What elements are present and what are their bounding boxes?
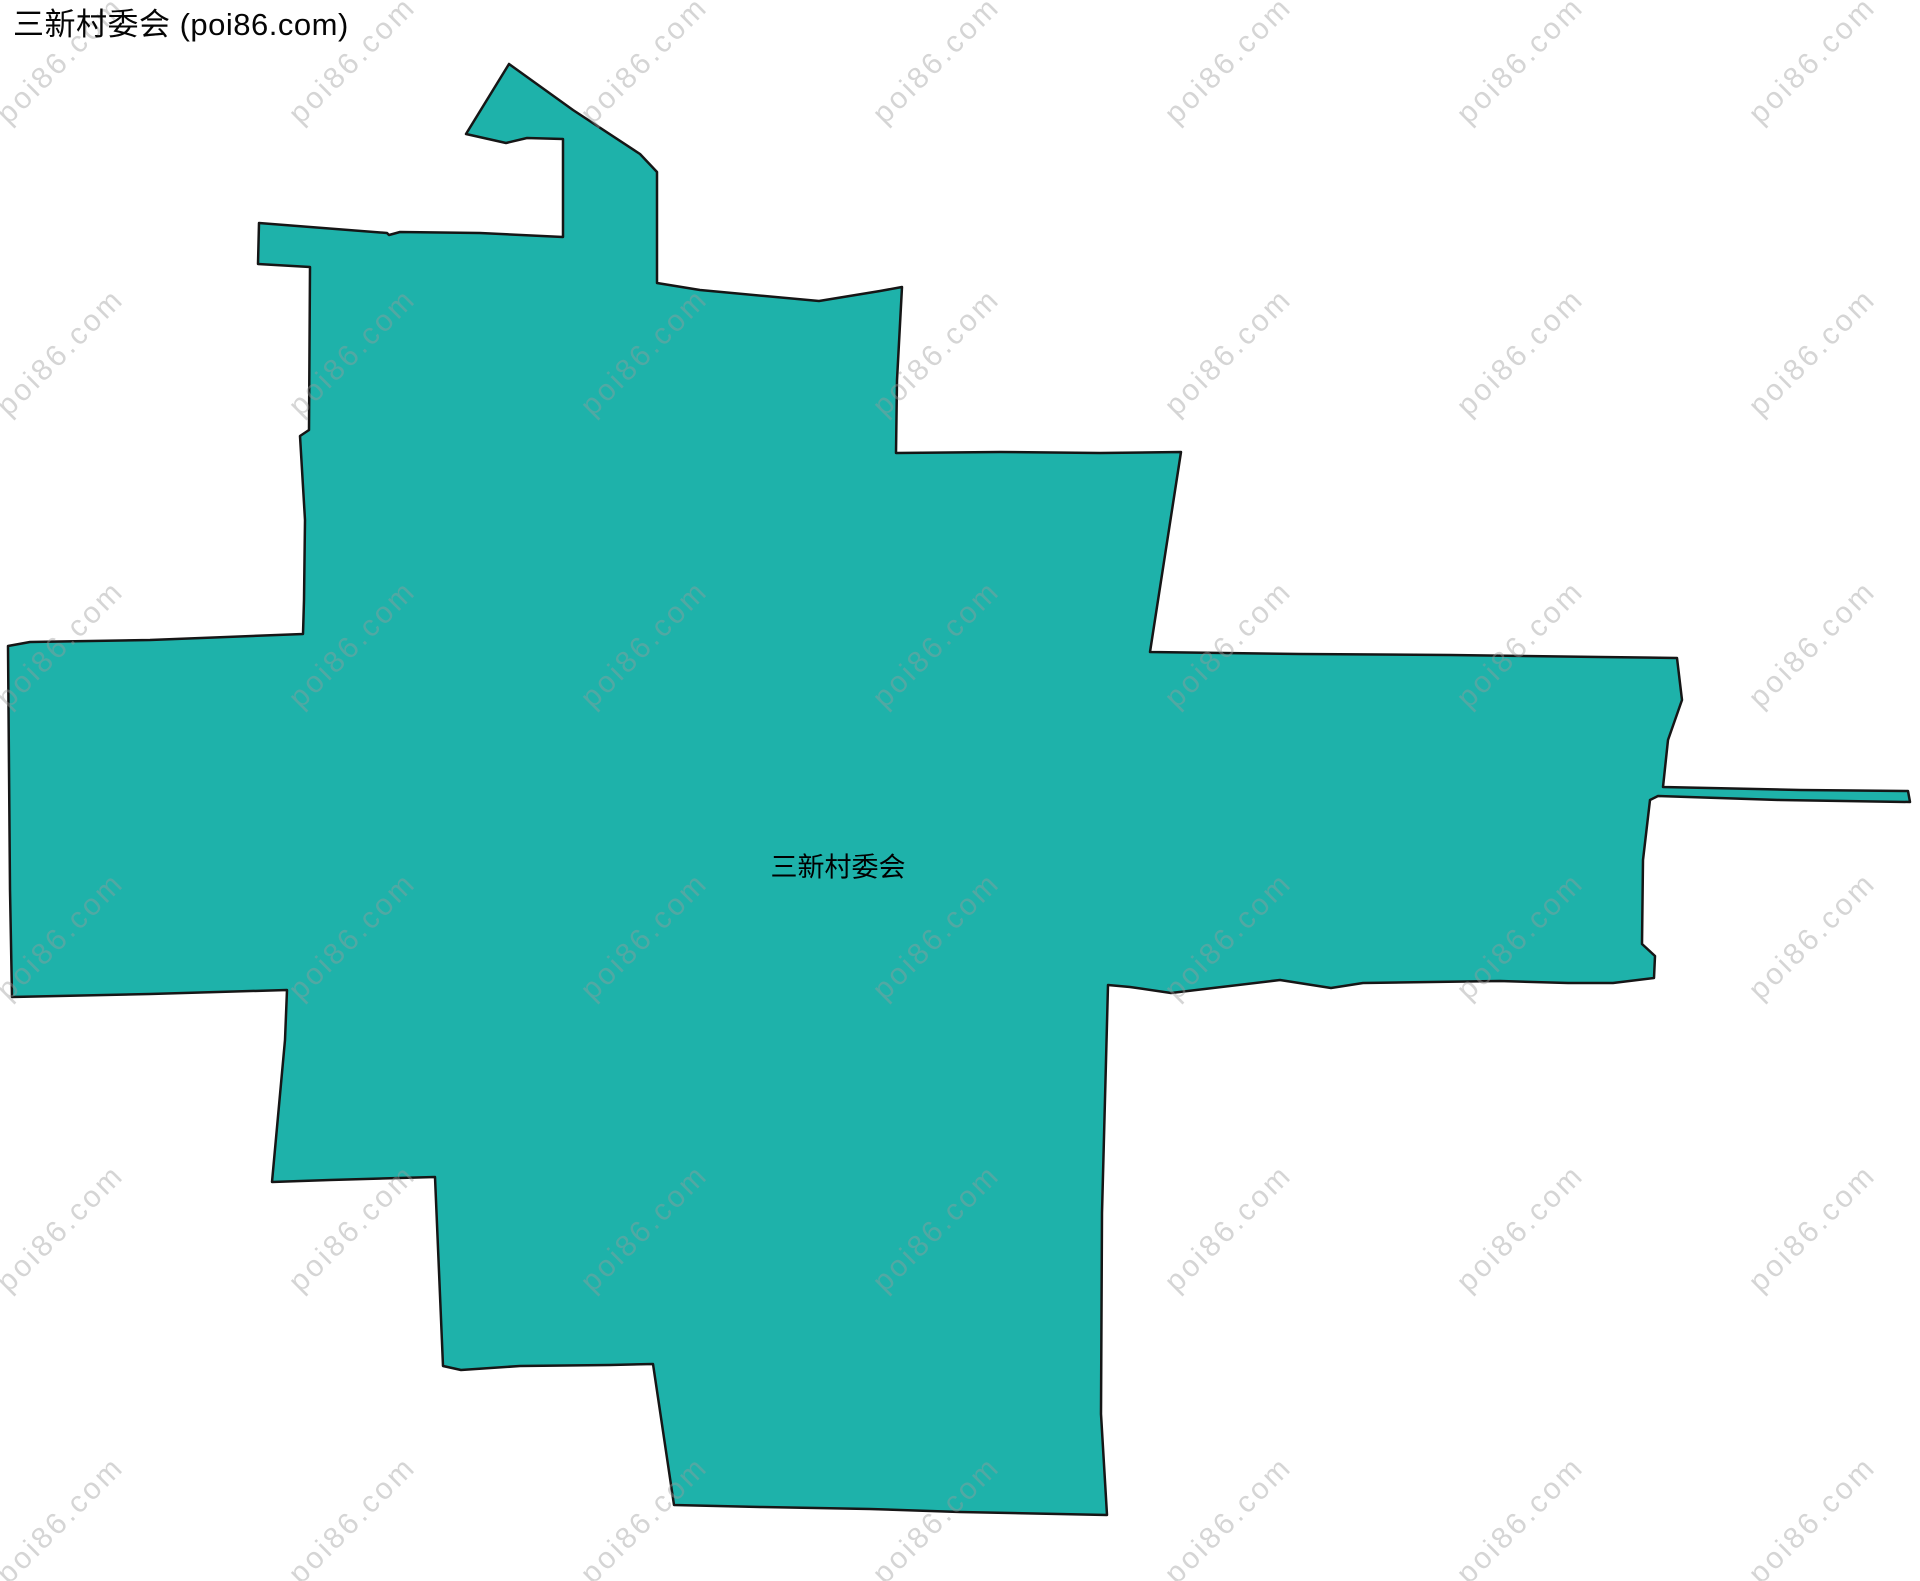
map-page: poi86.com 三新村委会 (poi86.com) 三新村委会 <box>0 0 1920 1581</box>
map-canvas: poi86.com <box>0 0 1920 1581</box>
page-title: 三新村委会 (poi86.com) <box>13 6 349 45</box>
region-label: 三新村委会 <box>771 846 906 885</box>
